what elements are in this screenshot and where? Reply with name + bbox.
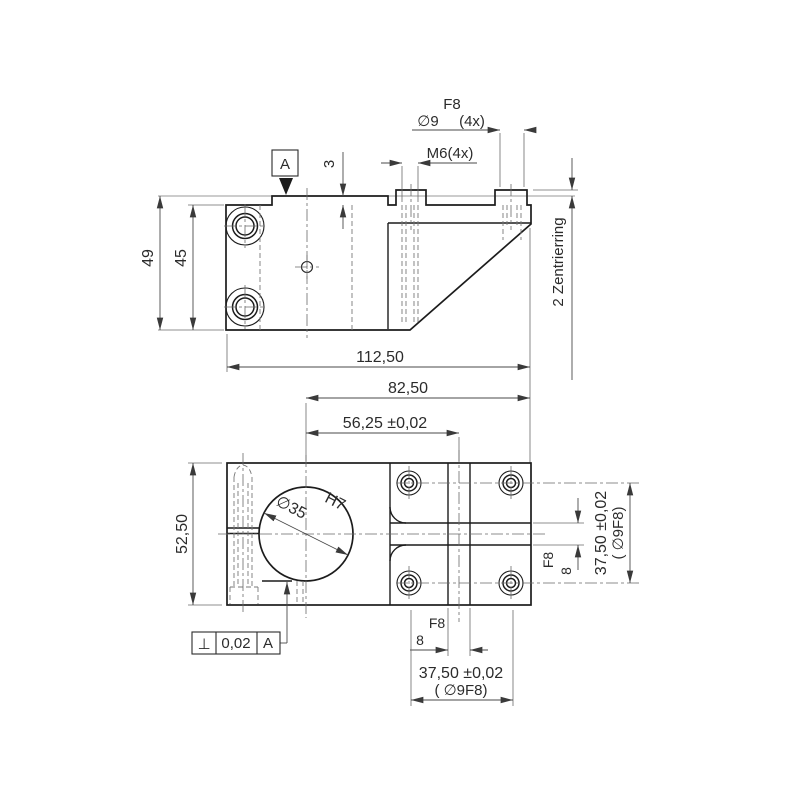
dim-3: 3: [321, 152, 343, 229]
datum-triangle: [279, 178, 293, 195]
drawing-sheet: A 49 45 3 F8 ∅9 (4x): [0, 0, 800, 800]
plan-centerlines: [218, 450, 640, 622]
note-zentrierring-text: 2 Zentrierring: [550, 217, 567, 306]
dim-bottom-slot-8: F8 8: [410, 608, 488, 656]
side-view-outline: [226, 190, 531, 330]
dim-112-50-text: 112,50: [356, 349, 404, 366]
plan-view: ∅35 H7 82,50 56,25 ±0,02 52,50: [174, 380, 640, 706]
dim-52-50: 52,50: [174, 463, 222, 605]
note-zentrierring: 2 Zentrierring: [533, 158, 578, 380]
bottom-hole-spacing-text: 37,50 ±0,02: [419, 665, 504, 682]
label-m6: M6(4x): [427, 145, 474, 162]
bottom-slot-width-text: 8: [416, 632, 424, 648]
dim-52-50-text: 52,50: [174, 514, 191, 554]
dim-56-25: 56,25 ±0,02: [306, 415, 459, 461]
datum-flag: A: [272, 150, 298, 195]
dim-56-25-text: 56,25 ±0,02: [343, 415, 428, 432]
tolerance-value: 0,02: [221, 635, 250, 652]
tolerance-frame: ⊥ 0,02 A: [192, 582, 287, 654]
right-hole-spacing-text: 37,50 ±0,02: [593, 491, 610, 576]
technical-drawing: A 49 45 3 F8 ∅9 (4x): [0, 0, 800, 800]
bottom-hole-spec-text: ( ∅9F8): [434, 682, 487, 699]
dim-45-text: 45: [173, 249, 190, 267]
label-dia9: ∅9: [417, 113, 438, 130]
right-hole-spec-text: ( ∅9F8): [610, 506, 627, 559]
tolerance-datum: A: [263, 635, 273, 652]
dim-bottom-37-50: 37,50 ±0,02 ( ∅9F8): [411, 610, 513, 706]
dim-dia9: F8 ∅9 (4x): [412, 96, 536, 187]
right-slot-fit-text: F8: [540, 552, 556, 569]
plan-hidden-thread-hole: [230, 465, 303, 605]
dim-82-50-text: 82,50: [388, 380, 428, 397]
dim-dia35-text: ∅35: [273, 493, 309, 523]
side-view-centerlines: [224, 184, 511, 338]
dim-3-text: 3: [321, 160, 338, 168]
dim-right-37-50: 37,50 ±0,02 ( ∅9F8): [593, 483, 630, 583]
label-4x: (4x): [459, 113, 485, 130]
dim-right-slot-8: F8 8: [533, 498, 584, 575]
tolerance-symbol: ⊥: [197, 636, 210, 653]
side-view: A 49 45 3 F8 ∅9 (4x): [140, 96, 578, 380]
dim-h7-text: H7: [322, 490, 348, 514]
side-view-internal-edges: [388, 223, 531, 329]
bottom-slot-fit-text: F8: [429, 615, 446, 631]
dim-49-text: 49: [140, 249, 157, 267]
datum-label: A: [280, 156, 290, 173]
right-slot-width-text: 8: [558, 567, 574, 575]
dim-45: 45: [173, 205, 224, 330]
label-f8: F8: [443, 96, 461, 113]
